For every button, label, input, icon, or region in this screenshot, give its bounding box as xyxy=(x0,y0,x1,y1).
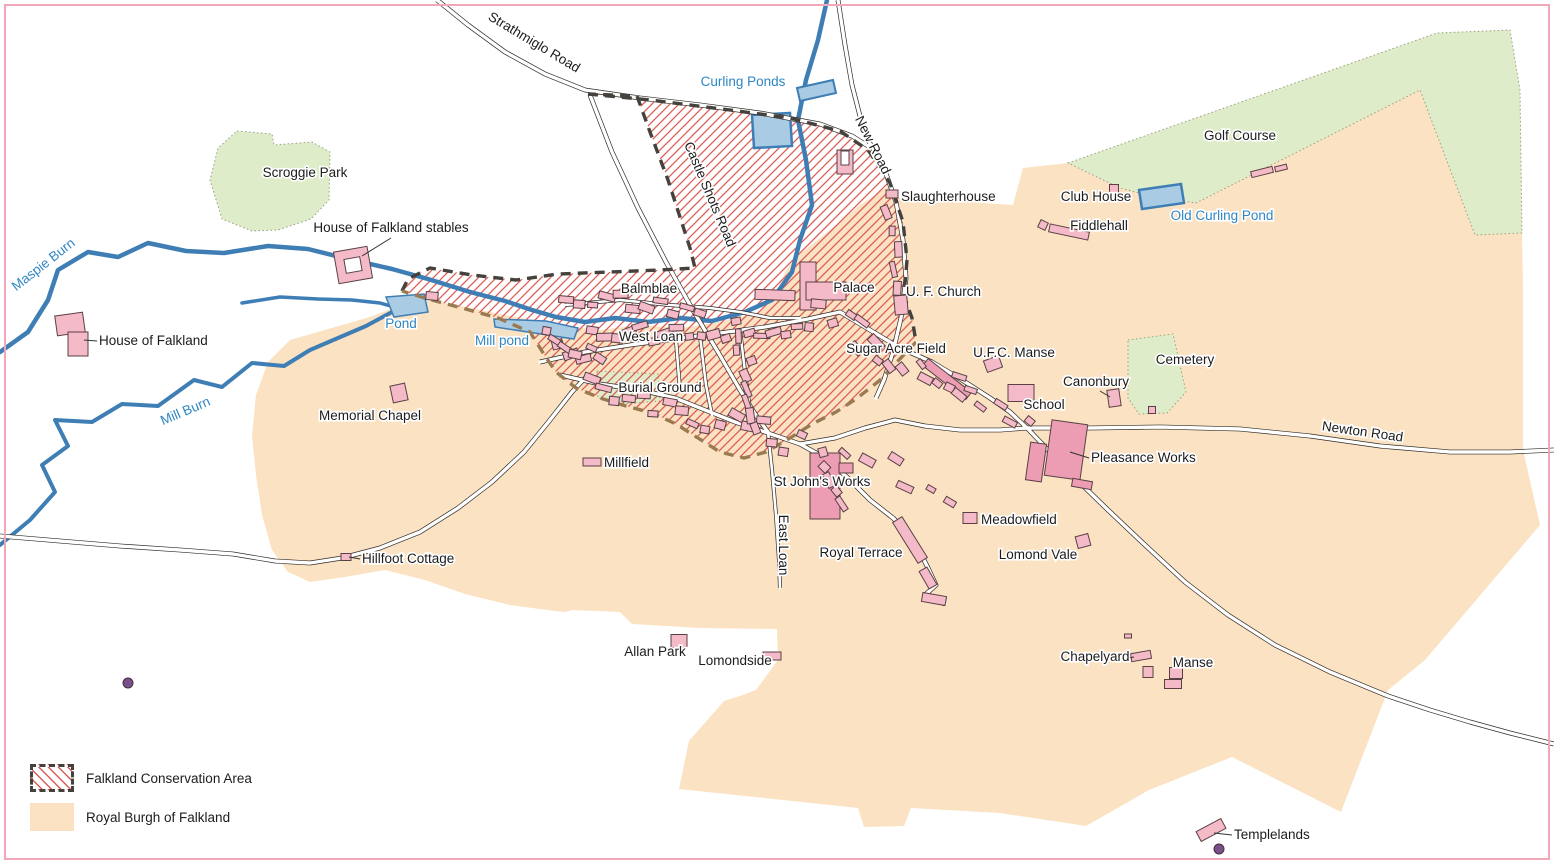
meadowfield-building xyxy=(963,513,977,524)
balmblae-label: Balmblae xyxy=(621,281,677,296)
high-street-south-cluster-building xyxy=(766,438,777,447)
slaughterhouse-label: Slaughterhouse xyxy=(901,189,996,204)
lomondside-label: Lomondside xyxy=(698,653,772,668)
st-johns-works-label: St John's Works xyxy=(774,474,871,489)
mid-street-cluster-building xyxy=(735,329,741,343)
canonbury-label: Canonbury xyxy=(1063,374,1129,389)
legend-label: Royal Burgh of Falkland xyxy=(86,810,230,825)
curling-pond-1 xyxy=(797,80,836,101)
school-label: School xyxy=(1023,397,1064,412)
club-house-label: Club House xyxy=(1061,189,1132,204)
manse-building xyxy=(1165,680,1182,689)
pleasance-works-label: Pleasance Works xyxy=(1091,450,1196,465)
mid-street-cluster-building xyxy=(745,407,755,423)
high-street-south-cluster-building xyxy=(700,425,710,434)
purple-marker-dot xyxy=(1214,844,1224,854)
u-building-notch xyxy=(841,151,849,165)
map-legend: Falkland Conservation Area Royal Burgh o… xyxy=(30,762,252,840)
lomond-vale-building xyxy=(1075,534,1091,549)
mill-lade-river xyxy=(242,297,398,308)
templelands-leader xyxy=(1214,833,1232,835)
high-street-north-cluster-building xyxy=(697,332,706,341)
pond-side-building xyxy=(426,291,439,300)
chapelyard-building xyxy=(1143,667,1153,678)
allan-park-label: Allan Park xyxy=(624,644,686,659)
house-of-falkland-label: House of Falkland xyxy=(99,333,208,348)
royal-terrace-label: Royal Terrace xyxy=(819,545,902,560)
stables-courtyard xyxy=(344,257,362,274)
high-street-north-cluster-building xyxy=(731,317,741,326)
cemetery-label: Cemetery xyxy=(1156,352,1215,367)
high-street-north-cluster-building xyxy=(804,323,813,332)
legend-item-conservation: Falkland Conservation Area xyxy=(30,762,252,794)
mid-street-cluster-building xyxy=(733,345,740,356)
mill-pond-label: Mill pond xyxy=(475,333,529,348)
balmblae-row-building xyxy=(755,289,795,300)
old-curling-pond-label: Old Curling Pond xyxy=(1171,208,1274,223)
house-of-falkland-building xyxy=(68,332,88,356)
new-road-strip-cluster-building xyxy=(894,241,902,257)
pond-label: Pond xyxy=(385,316,417,331)
memorial-chapel-building xyxy=(390,383,408,403)
balmblae-cluster-building xyxy=(587,302,597,308)
high-street-north-cluster-building xyxy=(791,323,803,329)
cemetery-side-building xyxy=(1149,407,1156,414)
east-loan-cluster-building xyxy=(818,447,828,458)
high-street-south-cluster-building xyxy=(648,410,658,417)
palace-label: Palace xyxy=(833,280,874,295)
high-street-north-cluster-building xyxy=(781,330,792,339)
high-street-south-cluster-building xyxy=(778,447,789,457)
west-loan-label: West Loan xyxy=(619,329,683,344)
st-johns-works-building xyxy=(839,463,853,473)
fiddlehall-label: Fiddlehall xyxy=(1070,218,1128,233)
chapelyard-label: Chapelyard xyxy=(1060,649,1129,664)
stables-label: House of Falkland stables xyxy=(313,220,469,235)
burial-ground-label: Burial Ground xyxy=(618,380,701,395)
curling-ponds-label: Curling Ponds xyxy=(701,74,786,89)
millfield-building xyxy=(583,458,601,466)
slaughterhouse-building xyxy=(886,190,898,198)
memorial-chapel-label: Memorial Chapel xyxy=(319,408,421,423)
falkland-map-page: Maspie BurnScroggie ParkHouse of Falklan… xyxy=(0,0,1554,864)
ufc-manse-label: U.F.C. Manse xyxy=(973,345,1055,360)
high-street-south-cluster-building xyxy=(756,416,771,425)
balmblae-cluster-building xyxy=(573,300,585,309)
scroggie-park-label: Scroggie Park xyxy=(263,165,348,180)
sugar-acre-field-label: Sugar Acre Field xyxy=(846,341,946,356)
high-street-south-cluster-building xyxy=(622,394,636,402)
templelands-building xyxy=(1196,819,1226,842)
high-street-north-cluster-building xyxy=(811,299,827,309)
new-road-strip-cluster-building xyxy=(893,281,901,295)
chapelyard-building xyxy=(1125,634,1132,638)
conservation-swatch xyxy=(30,764,74,792)
falkland-map-canvas[interactable]: Maspie BurnScroggie ParkHouse of Falklan… xyxy=(0,0,1554,864)
golf-course-label: Golf Course xyxy=(1204,128,1276,143)
meadowfield-label: Meadowfield xyxy=(981,512,1057,527)
scroggie-park-area xyxy=(210,131,330,231)
millfield-label: Millfield xyxy=(604,455,649,470)
manse-label: Manse xyxy=(1173,655,1214,670)
high-street-south-cluster-building xyxy=(609,396,620,406)
lomond-vale-label: Lomond Vale xyxy=(999,547,1078,562)
legend-item-burgh: Royal Burgh of Falkland xyxy=(30,801,252,833)
legend-label: Falkland Conservation Area xyxy=(86,771,252,786)
high-street-north-cluster-building xyxy=(685,333,694,341)
high-street-south-cluster-building xyxy=(675,406,689,416)
purple-marker-dot xyxy=(123,678,133,688)
pleasance-works-building xyxy=(1044,420,1087,480)
hillfoot-cottage-label: Hillfoot Cottage xyxy=(362,551,454,566)
new-road-strip-cluster-building xyxy=(889,226,895,236)
east-loan-label: East Loan xyxy=(776,515,791,576)
templelands-label: Templelands xyxy=(1234,827,1310,842)
burgh-swatch xyxy=(30,803,74,831)
canonbury-building xyxy=(1107,389,1121,408)
balmblae-cluster-building xyxy=(558,296,573,304)
uf-church-label: U. F. Church xyxy=(906,284,981,299)
west-loan-cluster-building xyxy=(542,326,551,335)
